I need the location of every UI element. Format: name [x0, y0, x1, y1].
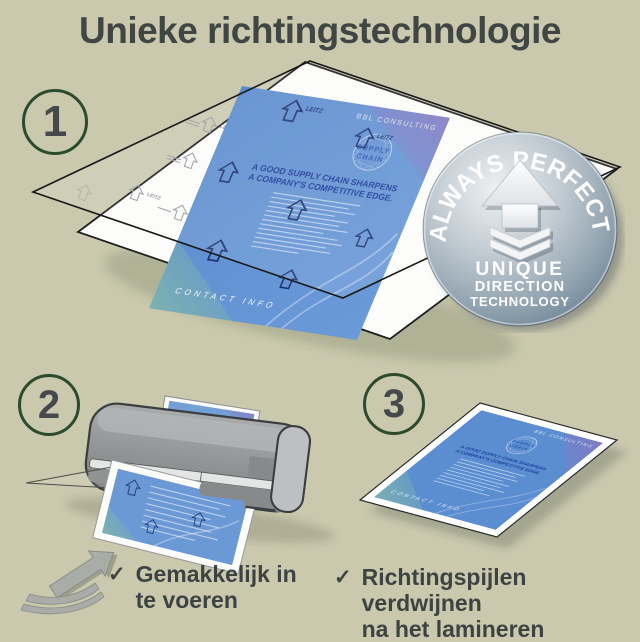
caption-step2-line2: te voeren [136, 587, 297, 613]
infographic-canvas: Unieke richtingstechnologie LEITZ [0, 0, 640, 640]
page-title: Unieke richtingstechnologie [0, 10, 640, 52]
caption-step2-text: Gemakkelijk in te voeren [136, 561, 297, 613]
caption-step2: ✓ Gemakkelijk in te voeren [108, 561, 297, 613]
step-number-2: 2 [18, 374, 80, 436]
caption-step3-line1: Richtingspijlen verdwijnen [362, 564, 640, 616]
always-perfect-badge: ALWAYS PERFECT! UNIQUE DIRECTION TECHNOL… [415, 123, 625, 333]
step-number-1: 1 [22, 89, 88, 155]
badge-line2: DIRECTION [475, 279, 566, 295]
caption-step3-line2: na het lamineren [362, 616, 640, 642]
caption-step2-line1: Gemakkelijk in [136, 561, 297, 587]
checkmark-icon: ✓ [334, 564, 352, 642]
step-number-3-label: 3 [383, 382, 405, 427]
step-number-2-label: 2 [38, 383, 60, 428]
badge-line1: UNIQUE [476, 259, 565, 280]
caption-step3-text: Richtingspijlen verdwijnen na het lamine… [362, 564, 640, 642]
pouch-tip-outline [26, 467, 112, 488]
badge-line3: TECHNOLOGY [470, 294, 570, 309]
caption-step3: ✓ Richtingspijlen verdwijnen na het lami… [334, 564, 640, 642]
step-number-3: 3 [363, 373, 425, 435]
checkmark-icon: ✓ [108, 561, 126, 613]
step-number-1-label: 1 [43, 97, 67, 147]
